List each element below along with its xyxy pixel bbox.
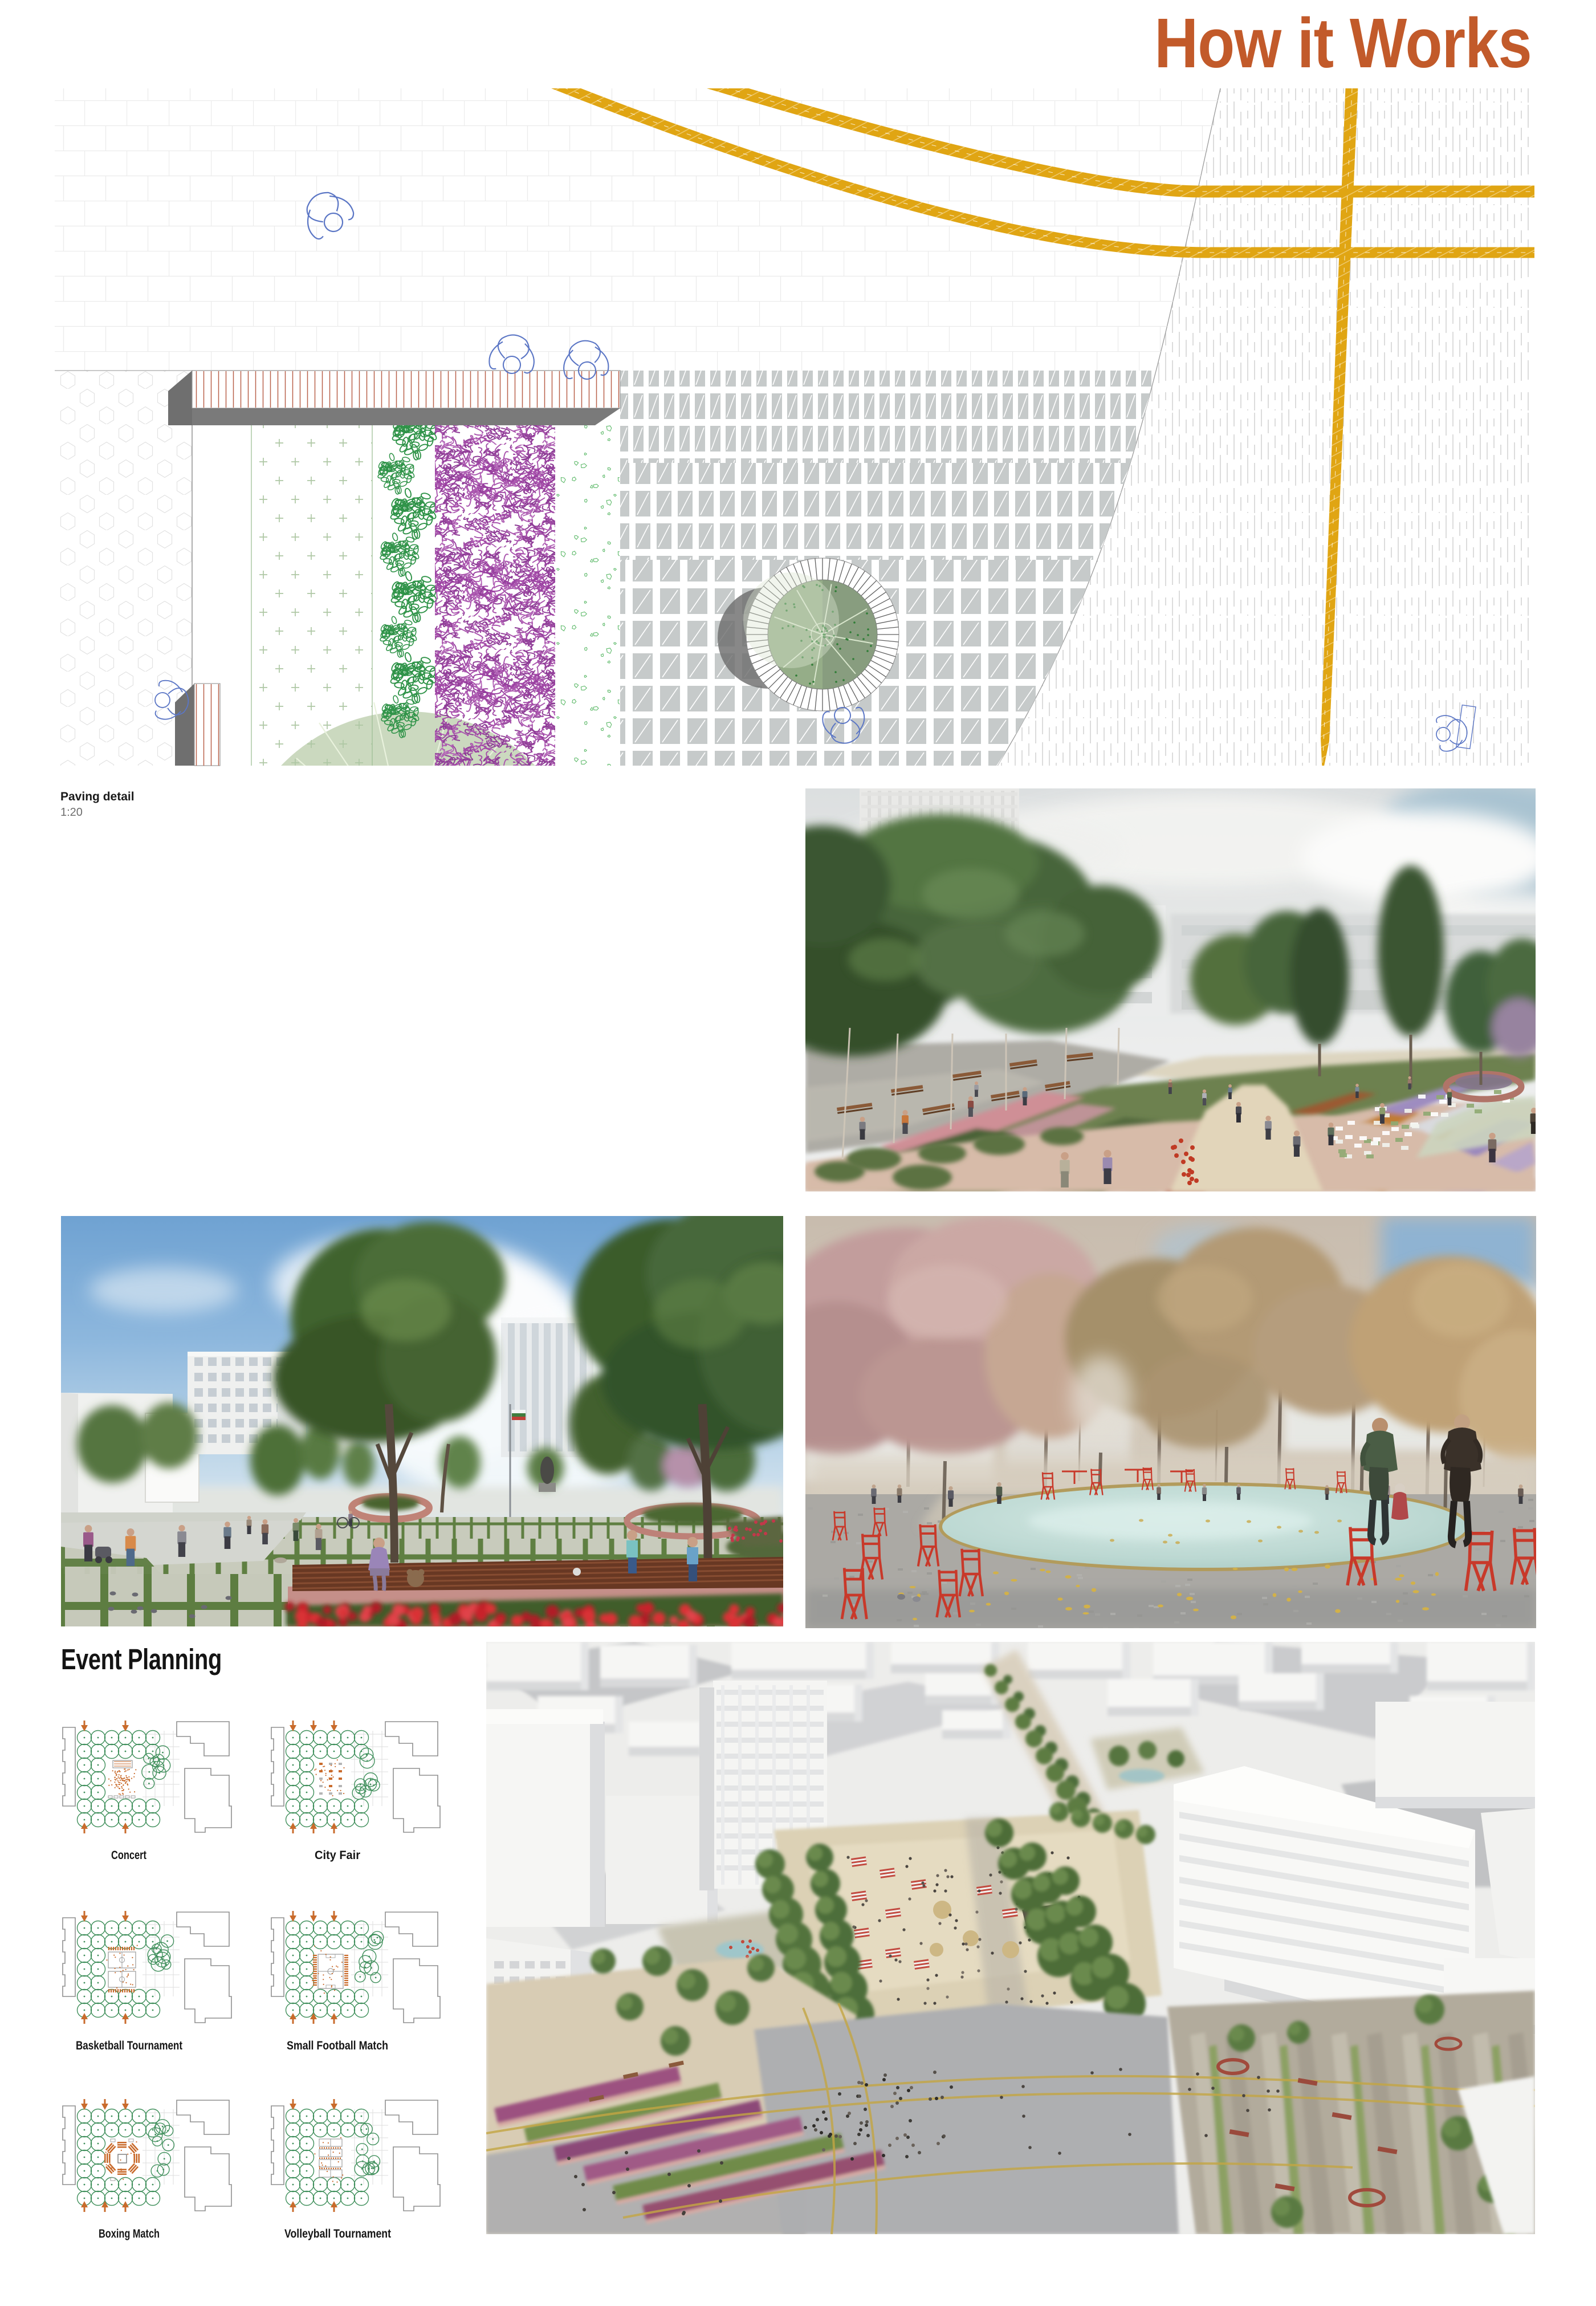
svg-text:Volleyball Tournament: Volleyball Tournament [284, 2227, 391, 2240]
svg-text:Boxing Match: Boxing Match [99, 2227, 160, 2240]
svg-text:Small Football Match: Small Football Match [287, 2039, 388, 2052]
svg-text:Basketball Tournament: Basketball Tournament [76, 2039, 182, 2052]
svg-text:Concert: Concert [111, 1848, 146, 1862]
svg-text:City Fair: City Fair [315, 1848, 361, 1862]
